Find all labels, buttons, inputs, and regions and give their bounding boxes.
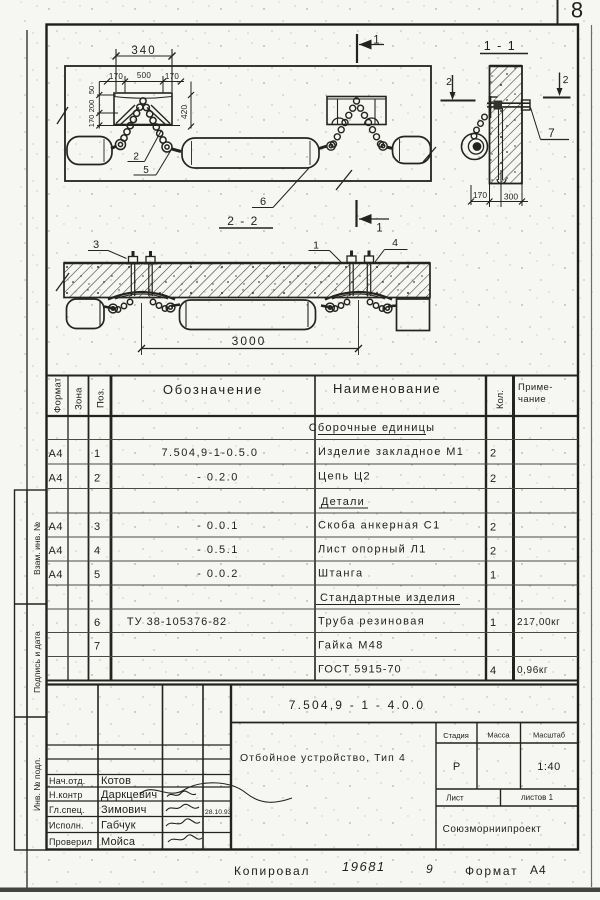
- svg-text:листов 1: листов 1: [521, 793, 554, 802]
- svg-text:2 - 2: 2 - 2: [227, 214, 259, 228]
- svg-text:Проверил: Проверил: [49, 837, 92, 847]
- svg-text:170: 170: [473, 190, 487, 200]
- svg-text:Стадия: Стадия: [443, 731, 469, 740]
- svg-text:Приме-: Приме-: [518, 382, 553, 393]
- svg-text:Штанга: Штанга: [318, 568, 363, 580]
- svg-text:А4: А4: [49, 448, 63, 460]
- svg-text:Скоба анкерная С1: Скоба анкерная С1: [318, 520, 441, 532]
- svg-text:ТУ 38-105376-82: ТУ 38-105376-82: [127, 616, 227, 628]
- svg-text:2: 2: [446, 76, 452, 88]
- svg-text:1: 1: [313, 240, 319, 252]
- svg-text:Исполн.: Исполн.: [49, 821, 84, 831]
- svg-text:Формат: Формат: [465, 864, 518, 878]
- svg-text:1: 1: [376, 223, 382, 235]
- svg-text:Зона: Зона: [74, 387, 85, 410]
- svg-text:2: 2: [563, 74, 569, 86]
- svg-text:6: 6: [94, 617, 100, 629]
- svg-text:2: 2: [490, 546, 496, 558]
- svg-text:Лист: Лист: [446, 794, 464, 803]
- svg-text:4: 4: [94, 545, 100, 557]
- svg-text:500: 500: [137, 71, 151, 80]
- svg-text:Цепь Ц2: Цепь Ц2: [318, 471, 371, 483]
- svg-text:Котов: Котов: [101, 775, 131, 787]
- svg-text:4: 4: [392, 237, 398, 249]
- svg-text:- 0.0.2: - 0.0.2: [197, 568, 239, 580]
- svg-text:чание: чание: [518, 394, 546, 405]
- svg-text:А4: А4: [49, 473, 63, 485]
- svg-text:Союзморниипроект: Союзморниипроект: [443, 824, 542, 835]
- svg-text:170: 170: [165, 72, 179, 81]
- svg-text:- 0.5.1: - 0.5.1: [197, 544, 239, 556]
- svg-text:Масштаб: Масштаб: [533, 731, 565, 740]
- svg-text:3: 3: [93, 239, 99, 251]
- svg-text:Взам. инв. №: Взам. инв. №: [32, 522, 42, 575]
- svg-text:5: 5: [143, 165, 149, 176]
- svg-text:Габчук: Габчук: [101, 820, 136, 832]
- svg-text:Обозначение: Обозначение: [163, 382, 263, 397]
- svg-text:7: 7: [94, 641, 100, 653]
- svg-text:1 - 1: 1 - 1: [484, 39, 517, 53]
- svg-text:Отбойное устройство, Тип 4: Отбойное устройство, Тип 4: [240, 752, 406, 764]
- svg-text:Сборочные единицы: Сборочные единицы: [309, 422, 436, 434]
- svg-text:2: 2: [133, 152, 139, 163]
- svg-text:1:40: 1:40: [537, 761, 560, 773]
- svg-text:28.10.93: 28.10.93: [205, 809, 232, 816]
- svg-text:Гл.спец.: Гл.спец.: [49, 805, 85, 815]
- svg-text:Даркцевич: Даркцевич: [101, 789, 157, 801]
- svg-text:170: 170: [109, 72, 123, 81]
- svg-text:340: 340: [131, 45, 156, 57]
- svg-text:8: 8: [571, 0, 583, 23]
- svg-text:1: 1: [373, 35, 379, 47]
- svg-text:200: 200: [87, 100, 96, 113]
- svg-text:3: 3: [94, 521, 100, 533]
- svg-text:Труба резиновая: Труба резиновая: [318, 616, 425, 628]
- svg-text:Гайка М48: Гайка М48: [318, 640, 384, 652]
- svg-text:Формат: Формат: [53, 377, 64, 413]
- svg-text:217,00кг: 217,00кг: [517, 617, 560, 628]
- svg-text:Зимович: Зимович: [101, 804, 147, 816]
- svg-text:Р: Р: [453, 761, 460, 773]
- svg-text:9: 9: [426, 862, 433, 876]
- svg-text:- 0.2.0: - 0.2.0: [197, 472, 239, 484]
- svg-text:Изделие закладное М1: Изделие закладное М1: [318, 446, 464, 458]
- svg-text:7: 7: [548, 128, 554, 140]
- svg-text:7.504,9 - 1 - 4.0.0: 7.504,9 - 1 - 4.0.0: [289, 698, 426, 712]
- svg-text:Масса: Масса: [487, 731, 510, 740]
- svg-text:2: 2: [94, 473, 100, 485]
- svg-text:300: 300: [504, 192, 518, 202]
- svg-text:1: 1: [490, 570, 496, 582]
- svg-text:2: 2: [490, 448, 496, 460]
- svg-text:Копировал: Копировал: [234, 864, 310, 878]
- svg-text:19681: 19681: [342, 859, 386, 874]
- svg-text:50: 50: [87, 86, 96, 94]
- svg-text:5: 5: [94, 569, 100, 581]
- svg-text:- 0.0.1: - 0.0.1: [197, 520, 239, 532]
- svg-text:1: 1: [490, 617, 496, 629]
- svg-text:Лист опорный Л1: Лист опорный Л1: [318, 544, 427, 556]
- svg-text:7.504,9-1-0.5.0: 7.504,9-1-0.5.0: [161, 447, 258, 459]
- svg-text:Инв. № подл.: Инв. № подл.: [32, 757, 42, 811]
- svg-text:А4: А4: [49, 521, 63, 533]
- svg-text:А4: А4: [49, 569, 63, 581]
- svg-text:А4: А4: [530, 863, 547, 877]
- svg-text:0,96кг: 0,96кг: [517, 665, 548, 676]
- svg-text:Н.контр: Н.контр: [49, 790, 83, 800]
- svg-text:Подпись и дата: Подпись и дата: [32, 631, 42, 693]
- svg-text:Стандартные изделия: Стандартные изделия: [320, 592, 456, 604]
- svg-text:А4: А4: [49, 545, 63, 557]
- svg-text:Поз.: Поз.: [96, 388, 107, 408]
- svg-text:420: 420: [179, 105, 189, 119]
- svg-text:ГОСТ 5915-70: ГОСТ 5915-70: [318, 664, 402, 676]
- svg-text:Детали: Детали: [321, 496, 365, 508]
- svg-text:170: 170: [87, 115, 96, 128]
- svg-text:Мойса: Мойса: [101, 836, 136, 848]
- svg-text:Наименование: Наименование: [333, 381, 441, 396]
- svg-text:1: 1: [94, 448, 100, 460]
- svg-text:6: 6: [260, 196, 266, 208]
- svg-text:Нач.отд.: Нач.отд.: [49, 776, 85, 786]
- svg-text:4: 4: [490, 665, 496, 677]
- svg-text:2: 2: [490, 473, 496, 485]
- svg-text:2: 2: [490, 522, 496, 534]
- svg-text:Кол.: Кол.: [495, 390, 506, 409]
- svg-text:3000: 3000: [232, 334, 267, 348]
